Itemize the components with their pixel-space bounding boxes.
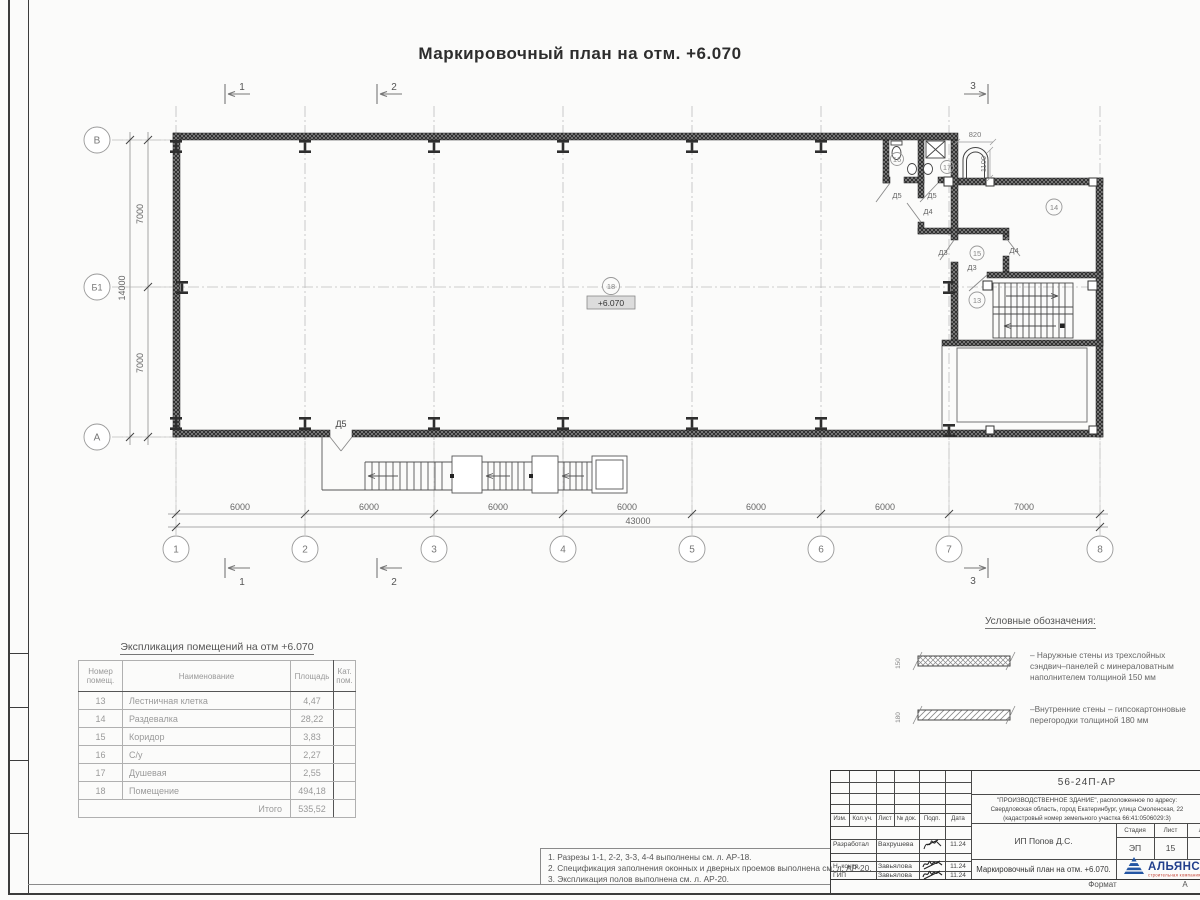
format-label: Формат xyxy=(1080,880,1125,889)
cell-name: С/у xyxy=(123,746,291,764)
tb-col-podp: Подп. xyxy=(919,815,945,822)
dim-total-label: 43000 xyxy=(625,516,650,526)
section-label-2: 2 xyxy=(391,577,397,588)
axis-label-4: 4 xyxy=(560,545,566,556)
frame-margin-tick xyxy=(8,707,28,708)
door-label-d3: Д3 xyxy=(967,263,976,272)
signature-developer xyxy=(921,837,944,851)
col-number: Номер помещ. xyxy=(79,661,123,692)
frame-margin-tick xyxy=(8,833,28,834)
cell-cat xyxy=(334,764,356,782)
tb-role-gip: ГИП xyxy=(833,872,877,879)
axis-label-7: 7 xyxy=(946,545,952,556)
notes-block: 1. Разрезы 1-1, 2-2, 3-3, 4-4 выполнены … xyxy=(548,852,872,884)
section-label-3: 3 xyxy=(970,576,976,587)
tb-col-list: Лист xyxy=(876,815,894,822)
table-header-row: Номер помещ. Наименование Площадь Кат. п… xyxy=(79,661,356,692)
company-logo: АЛЬЯНС строительная компания xyxy=(1123,855,1200,879)
table-total-row: Итого 535,52 xyxy=(79,800,356,818)
section-label-2: 2 xyxy=(391,82,397,93)
note-line: 2. Спецификация заполнения оконных и две… xyxy=(548,863,872,874)
cell-area: 2,27 xyxy=(291,746,334,764)
note-line: 1. Разрезы 1-1, 2-2, 3-3, 4-4 выполнены … xyxy=(548,852,872,863)
cell-area: 28,22 xyxy=(291,710,334,728)
cell-cat xyxy=(334,728,356,746)
cell-num: 16 xyxy=(79,746,123,764)
door-label-d5: Д5 xyxy=(335,419,346,429)
dim-1100: 1100 xyxy=(979,156,988,172)
legend-bar-interior xyxy=(908,704,1020,728)
tb-doc-code: 56-24П-АР xyxy=(971,777,1200,788)
table-row: 17 Душевая 2,55 xyxy=(79,764,356,782)
legend-text-exterior: – Наружные стены из трехслойных сэндвич–… xyxy=(1030,650,1198,683)
cell-cat xyxy=(334,746,356,764)
post-columns xyxy=(944,177,1097,434)
table-row: 14 Раздевалка 28,22 xyxy=(79,710,356,728)
cell-num: 13 xyxy=(79,692,123,710)
legend-bar-exterior xyxy=(908,650,1020,674)
legend-dim-150: 150 xyxy=(895,658,902,669)
cell-name: Душевая xyxy=(123,764,291,782)
tb-role-ncontr: Н. контр. xyxy=(833,863,877,870)
tb-project-line2: Свердловская область, город Екатеринбург… xyxy=(973,806,1200,813)
axis-label-1: 1 xyxy=(173,545,179,556)
dim-label: 6000 xyxy=(746,502,766,512)
dim-label: 6000 xyxy=(488,502,508,512)
door-swings xyxy=(330,183,1020,451)
frame-margin-tick xyxy=(8,653,28,654)
tb-project-line3: (кадастровый номер земельного участка 66… xyxy=(973,815,1200,822)
axis-label-v: В xyxy=(94,136,101,147)
tb-sheets-value: 2 xyxy=(1187,843,1200,853)
dim-label: 7000 xyxy=(135,353,145,373)
axis-label-5: 5 xyxy=(689,545,695,556)
axis-label-2: 2 xyxy=(302,545,308,556)
legend-text-interior: –Внутренние стены – гипсокартонновые пер… xyxy=(1030,704,1198,726)
frame-margin-tick xyxy=(8,760,28,761)
floor-plan: Д5 Д5 Д5 Д4 Д3 Д4 Д3 16 17 14 15 13 18 +… xyxy=(0,0,1200,620)
room-number-16: 16 xyxy=(893,155,901,164)
tb-stage-value: ЭП xyxy=(1116,843,1154,853)
door-labels: Д5 Д5 Д5 Д4 Д3 Д4 Д3 xyxy=(335,191,1018,429)
section-marks xyxy=(225,84,988,578)
tb-date-gip: 11.24 xyxy=(945,872,971,879)
tb-sheet-label: Лист xyxy=(1154,827,1187,834)
stair-room-13 xyxy=(993,283,1073,338)
steel-columns xyxy=(170,140,955,437)
table-row: 15 Коридор 3,83 xyxy=(79,728,356,746)
axis-label-8: 8 xyxy=(1097,545,1103,556)
cell-area: 2,55 xyxy=(291,764,334,782)
cell-num: 15 xyxy=(79,728,123,746)
tb-date-developer: 11.24 xyxy=(945,841,971,848)
tb-col-data: Дата xyxy=(945,815,971,822)
tb-date-ncontr: 11.24 xyxy=(945,863,971,870)
tb-col-izm: Изм. xyxy=(831,815,849,822)
total-label: Итого xyxy=(79,800,291,818)
room-number-15: 15 xyxy=(973,249,981,258)
axis-label-3: 3 xyxy=(431,545,437,556)
tb-sheet-value: 15 xyxy=(1154,843,1187,853)
axis-label-6: 6 xyxy=(818,545,824,556)
room-number-18: 18 xyxy=(607,282,615,291)
cell-num: 17 xyxy=(79,764,123,782)
elevation-value: +6.070 xyxy=(598,298,625,308)
dim-label: 6000 xyxy=(617,502,637,512)
dim-label: 6000 xyxy=(359,502,379,512)
total-area: 535,52 xyxy=(291,800,334,818)
tb-sheets-label: Листов xyxy=(1187,827,1200,834)
note-line: 3. Экспликация полов выполнена см. л. АР… xyxy=(548,874,872,885)
cell-num: 14 xyxy=(79,710,123,728)
tb-name-ncontr: Завьялова xyxy=(878,863,918,870)
section-label-1: 1 xyxy=(239,577,245,588)
cell-name: Лестничная клетка xyxy=(123,692,291,710)
tb-client: ИП Попов Д.С. xyxy=(971,836,1116,846)
recess-dimensions xyxy=(954,139,996,181)
cell-name: Коридор xyxy=(123,728,291,746)
room-number-17: 17 xyxy=(943,163,951,172)
section-label-3: 3 xyxy=(970,81,976,92)
cell-area: 4,47 xyxy=(291,692,334,710)
notes-box-top xyxy=(540,848,830,849)
cell-cat xyxy=(334,692,356,710)
cell-cat xyxy=(334,710,356,728)
cell-name: Раздевалка xyxy=(123,710,291,728)
dim-label: 6000 xyxy=(230,502,250,512)
col-name: Наименование xyxy=(123,661,291,692)
title-block: Изм. Кол.уч. Лист № док. Подп. Дата Разр… xyxy=(830,770,1200,880)
elevation-mark: +6.070 xyxy=(587,296,635,309)
logo-text: АЛЬЯНС xyxy=(1148,861,1200,873)
room-number-14: 14 xyxy=(1050,203,1058,212)
door-label-d4: Д4 xyxy=(923,207,932,216)
cell-num: 18 xyxy=(79,782,123,800)
section-label-1: 1 xyxy=(239,82,245,93)
tb-col-dok: № док. xyxy=(894,815,919,822)
format-value: А xyxy=(1178,880,1192,889)
tb-name-developer: Вахрушева xyxy=(878,841,918,848)
tb-role-developer: Разработал xyxy=(833,841,877,848)
axis-label-b1: Б1 xyxy=(92,283,103,293)
tb-col-koluch: Кол.уч. xyxy=(849,815,876,822)
notes-box-left xyxy=(540,848,541,884)
logo-subtext: строительная компания xyxy=(1148,873,1200,878)
dim-label: 7000 xyxy=(135,204,145,224)
left-dimensions xyxy=(130,132,148,445)
drawing-sheet: { "sheet": { "title": "Маркировочный пла… xyxy=(0,0,1200,900)
tb-stage-label: Стадия xyxy=(1116,827,1154,834)
cell-cat xyxy=(334,782,356,800)
dim-label: 7000 xyxy=(1014,502,1034,512)
explication-table: Номер помещ. Наименование Площадь Кат. п… xyxy=(78,660,356,818)
signature-gip xyxy=(921,869,944,880)
table-row: 16 С/у 2,27 xyxy=(79,746,356,764)
cell-area: 3,83 xyxy=(291,728,334,746)
door-label-d5: Д5 xyxy=(927,191,936,200)
legend-dim-180: 180 xyxy=(895,712,902,723)
axis-label-a: А xyxy=(94,433,101,444)
dim-label: 6000 xyxy=(875,502,895,512)
tb-name-gip: Завьялова xyxy=(878,872,918,879)
explication-block: Экспликация помещений на отм +6.070 Номе… xyxy=(78,641,356,818)
exterior-stair xyxy=(322,437,627,493)
tb-project-line1: "ПРОИЗВОДСТВЕННОЕ ЗДАНИЕ", расположенное… xyxy=(973,797,1200,804)
building-walls xyxy=(173,133,1103,437)
cell-cat xyxy=(334,800,356,818)
table-row: 13 Лестничная клетка 4,47 xyxy=(79,692,356,710)
door-label-d3: Д3 xyxy=(938,248,947,257)
floor-opening xyxy=(942,346,1087,430)
col-area: Площадь xyxy=(291,661,334,692)
dim-total-label: 14000 xyxy=(117,275,127,300)
room-number-13: 13 xyxy=(973,296,981,305)
cell-name: Помещение xyxy=(123,782,291,800)
door-label-d5: Д5 xyxy=(892,191,901,200)
table-row: 18 Помещение 494,18 xyxy=(79,782,356,800)
explication-heading: Экспликация помещений на отм +6.070 xyxy=(78,641,356,653)
door-label-d4: Д4 xyxy=(1009,246,1018,255)
frame-bottom xyxy=(8,893,1200,895)
legend-heading: Условные обозначения: xyxy=(985,616,1096,627)
dim-820: 820 xyxy=(969,130,982,139)
col-cat: Кат. пом. xyxy=(334,661,356,692)
cell-area: 494,18 xyxy=(291,782,334,800)
tb-drawing-title: Маркировочный план на отм. +6.070. xyxy=(972,865,1115,874)
